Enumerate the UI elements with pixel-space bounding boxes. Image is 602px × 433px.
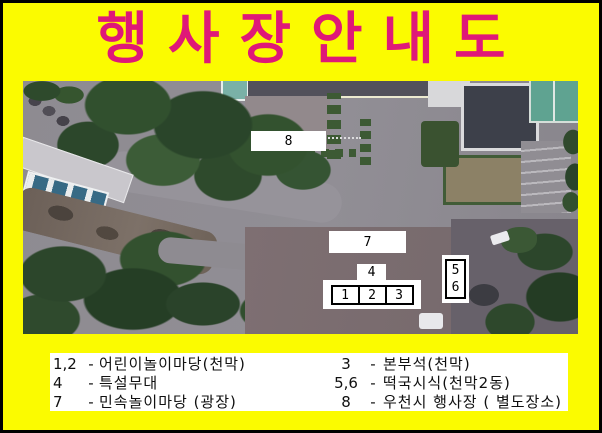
legend-label: 떡국시식(천막2동) — [383, 374, 568, 393]
legend-panel: 1,2 - 어린이놀이마당(천막) 3 - 본부석(천막) 4 - 특설무대 5… — [50, 353, 568, 411]
legend-number: 7 — [50, 393, 83, 411]
legend-dash: - — [83, 355, 99, 374]
page-title: 행사장안내도 — [3, 4, 599, 74]
legend-dash: - — [363, 374, 383, 393]
marker-number: 6 — [452, 281, 460, 294]
marker-number: 3 — [395, 289, 403, 302]
legend-dash: - — [363, 393, 383, 411]
map-marker-2: 2 — [358, 285, 387, 305]
marker-number: 5 — [452, 264, 460, 277]
map-marker-4: 4 — [357, 264, 386, 281]
round-planter — [469, 284, 499, 306]
legend-number: 8 — [329, 393, 363, 411]
legend-row: 4 - 특설무대 5,6 - 떡국시식(천막2동) — [50, 374, 568, 393]
map-marker-3: 3 — [385, 285, 414, 305]
legend-dash: - — [363, 355, 383, 374]
legend-label: 어린이놀이마당(천막) — [99, 355, 329, 374]
map-marker-8: 8 — [251, 131, 326, 151]
poster-frame: 행사장안내도 8 — [0, 0, 602, 433]
legend-number: 4 — [50, 374, 83, 393]
marker-5-6-box: 5 6 — [445, 259, 466, 299]
marker-number: 4 — [368, 266, 376, 279]
map-marker-7: 7 — [329, 231, 406, 253]
map-marker-5-6: 5 6 — [442, 255, 469, 303]
green-garden-square — [421, 121, 459, 167]
legend-dash: - — [83, 393, 99, 411]
trees-top-left — [23, 81, 87, 109]
marker-number: 8 — [285, 135, 293, 148]
legend-number: 1,2 — [50, 355, 83, 374]
legend-number: 5,6 — [329, 374, 363, 393]
legend-label: 본부석(천막) — [383, 355, 568, 374]
legend-label: 특설무대 — [99, 374, 329, 393]
legend-number: 3 — [329, 355, 363, 374]
trees-right-edge — [561, 117, 578, 212]
white-tent — [419, 313, 443, 329]
legend-dash: - — [83, 374, 99, 393]
hedge-column — [360, 119, 371, 165]
legend-label: 민속놀이마당 (광장) — [99, 393, 329, 411]
map-marker-strip-123: 1 2 3 — [323, 280, 421, 309]
marker-number: 1 — [341, 289, 349, 302]
marker-number: 7 — [364, 236, 372, 249]
legend-row: 7 - 민속놀이마당 (광장) 8 - 우천시 행사장 ( 별도장소) — [50, 393, 568, 411]
map-marker-1: 1 — [331, 285, 360, 305]
marker-number: 2 — [368, 289, 376, 302]
legend-row: 1,2 - 어린이놀이마당(천막) 3 - 본부석(천막) — [50, 355, 568, 374]
venue-aerial-map: 8 7 4 1 2 3 5 6 — [23, 81, 578, 334]
legend-label: 우천시 행사장 ( 별도장소) — [383, 393, 568, 411]
